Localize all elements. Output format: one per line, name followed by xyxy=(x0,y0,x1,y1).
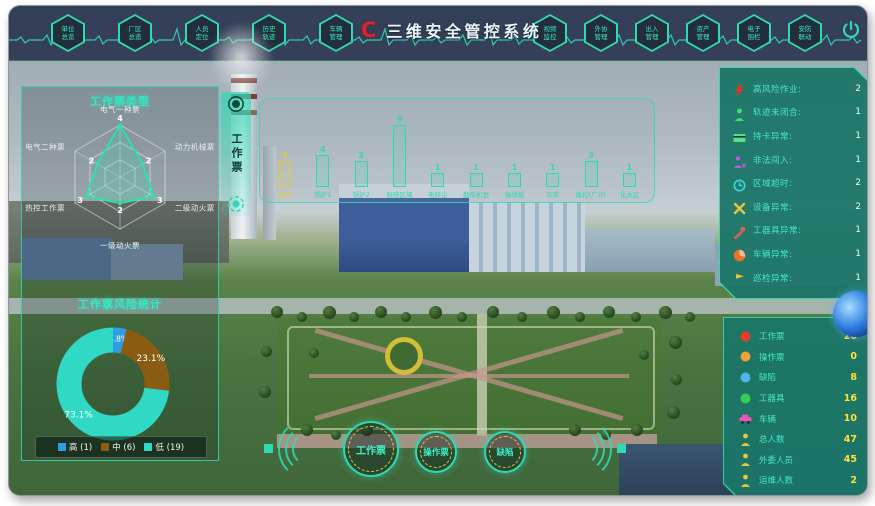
alarm-row-3: 非法闯入:1 xyxy=(733,148,861,172)
alarm-count: 1 xyxy=(845,225,861,235)
area-bar-value: 4 xyxy=(320,145,326,154)
arc-decoration-right xyxy=(550,418,612,480)
stats-label: 外委人员 xyxy=(759,454,844,466)
scene-tree xyxy=(271,306,283,318)
area-bar-value: 3 xyxy=(282,151,288,160)
nav-item-left-4-label: 车辆管理 xyxy=(329,25,344,41)
operation-ticket-button[interactable]: 操作票 xyxy=(415,431,457,473)
alarm-count: 2 xyxy=(845,84,861,94)
person-icon xyxy=(739,474,753,487)
area-bar-value: 3 xyxy=(358,151,364,160)
svg-text:73.1%: 73.1% xyxy=(64,411,93,421)
nav-item-left-1[interactable]: 厂区总览 xyxy=(118,14,152,52)
stats-label: 工器具 xyxy=(759,392,844,404)
scene-tree xyxy=(401,312,411,322)
alarm-label: 持卡异常: xyxy=(753,130,845,142)
scene-tree xyxy=(517,312,527,322)
nav-left-group: 单位总览厂区总览人员定位历史轨迹车辆管理 xyxy=(51,14,353,52)
stats-count: 8 xyxy=(850,372,857,383)
defect-button[interactable]: 缺陷 xyxy=(484,431,526,473)
power-icon xyxy=(840,19,862,41)
nav-item-left-0-face: 单位总览 xyxy=(53,16,83,50)
area-bar-value: 1 xyxy=(550,163,556,172)
scene-tree xyxy=(457,312,467,322)
area-bar-label: 锅炉1 xyxy=(314,189,331,199)
stats-rows: 工作票26操作票0缺陷8工器具16车辆10总人数47外委人员45运维人数2 xyxy=(739,326,857,491)
stats-label: 操作票 xyxy=(759,351,850,363)
alarm-count: 1 xyxy=(845,249,861,259)
area-bar-value: 9 xyxy=(397,115,403,124)
scene-helipad xyxy=(385,337,423,375)
nav-right-group: 视频监控外协管理出入管理资产管理电子围栏安防联动 xyxy=(533,14,822,52)
area-bar-value: 1 xyxy=(435,163,441,172)
scene-tree xyxy=(603,306,615,318)
scene-tree xyxy=(429,306,442,319)
card-icon xyxy=(733,129,748,142)
stats-label: 工作票 xyxy=(759,330,844,342)
person-icon xyxy=(733,106,748,119)
area-bar-1: 4锅炉1 xyxy=(304,145,341,199)
legend-swatch xyxy=(58,443,66,451)
legend-swatch xyxy=(101,443,109,451)
area-bar-4: 1电除尘 xyxy=(419,163,456,199)
high-voltage-icon xyxy=(733,82,748,95)
work-ticket-button-label: 工作票 xyxy=(356,442,386,457)
alarm-panel: 高风险作业:2轨迹未闭合:1持卡异常:1非法闯入:1区域超时:2设备异常:2工器… xyxy=(719,67,868,299)
stats-label: 车辆 xyxy=(759,413,844,425)
area-bar-0: 3栈桥 xyxy=(266,151,303,199)
area-bar-rect xyxy=(585,161,598,187)
alarm-row-1: 轨迹未闭合:1 xyxy=(733,101,861,125)
stats-row-5: 总人数47 xyxy=(739,429,857,450)
area-bar-7: 1灰库 xyxy=(534,163,571,199)
area-bar-label: 锅炉2 xyxy=(353,189,370,199)
alarm-rows: 高风险作业:2轨迹未闭合:1持卡异常:1非法闯入:1区域超时:2设备异常:2工器… xyxy=(733,77,861,289)
area-bar-label: 脱硫区域 xyxy=(386,189,412,199)
area-bar-label: 栈桥 xyxy=(278,189,291,199)
stats-row-7: 运维人数2 xyxy=(739,470,857,491)
brand: C 三维安全管控系统 xyxy=(361,18,542,42)
area-bar-5: 1翻车机室 xyxy=(458,163,495,199)
nav-item-right-1[interactable]: 外协管理 xyxy=(584,14,618,52)
nav-item-right-0-label: 视频监控 xyxy=(543,25,558,41)
nav-item-right-3[interactable]: 资产管理 xyxy=(686,14,720,52)
alarm-label: 工器具异常: xyxy=(753,224,845,236)
stats-row-1: 操作票0 xyxy=(739,347,857,368)
stats-count: 10 xyxy=(844,413,857,424)
alarm-label: 巡检异常: xyxy=(753,272,845,284)
svg-text:2: 2 xyxy=(146,157,152,166)
alarm-count: 1 xyxy=(845,155,861,165)
legend-item-1: 中 (6) xyxy=(101,441,135,453)
svg-text:电气一种票: 电气一种票 xyxy=(100,104,140,114)
area-bar-label: 灰库 xyxy=(546,189,559,199)
nav-item-right-3-face: 资产管理 xyxy=(688,16,718,50)
app-screen: 单位总览厂区总览人员定位历史轨迹车辆管理 C 三维安全管控系统 视频监控外协管理… xyxy=(8,5,868,496)
scene-tree xyxy=(487,306,499,318)
scene-tree xyxy=(323,306,336,319)
alarm-row-4: 区域超时:2 xyxy=(733,171,861,195)
person-icon xyxy=(739,433,753,446)
area-bar-label: 集控(厂)外 xyxy=(576,189,607,199)
stats-panel: 工作票26操作票0缺陷8工器具16车辆10总人数47外委人员45运维人数2 xyxy=(723,317,868,496)
alarm-label: 高风险作业: xyxy=(753,83,845,95)
area-bar-label: 翻车机室 xyxy=(463,189,489,199)
area-bar-rect xyxy=(355,161,368,187)
side-tab-label: 工作票 xyxy=(228,133,244,175)
nav-item-right-1-face: 外协管理 xyxy=(586,16,616,50)
clock-icon xyxy=(733,177,748,190)
scene-tree xyxy=(631,312,641,322)
alarm-label: 车辆异常: xyxy=(753,248,845,260)
svg-text:3: 3 xyxy=(77,196,83,205)
area-bar-rect xyxy=(431,173,444,187)
nav-item-right-4-face: 电子围栏 xyxy=(739,16,769,50)
area-bar-value: 1 xyxy=(473,163,479,172)
ring-dashed-icon xyxy=(227,195,245,213)
dot-icon xyxy=(739,350,753,363)
area-bar-value: 1 xyxy=(512,163,518,172)
scene-tree xyxy=(375,306,387,318)
area-bar-label: 化水区 xyxy=(620,189,640,199)
defect-button-label: 缺陷 xyxy=(496,446,513,458)
scene-tree xyxy=(261,346,272,357)
svg-text:电气二种票: 电气二种票 xyxy=(25,142,65,152)
svg-text:4: 4 xyxy=(117,114,123,123)
area-bar-rect xyxy=(546,173,559,187)
area-bar-6: 1输煤楼 xyxy=(496,163,533,199)
nav-item-right-2-face: 出入管理 xyxy=(637,16,667,50)
nav-item-right-2-label: 出入管理 xyxy=(645,25,660,41)
donut-legend: 高 (1)中 (6)低 (19) xyxy=(35,436,207,458)
scene-path xyxy=(309,374,629,378)
scene-tree xyxy=(671,374,682,385)
scene-tree xyxy=(639,350,649,360)
area-bar-label: 输煤楼 xyxy=(505,189,525,199)
stats-label: 缺陷 xyxy=(759,371,850,383)
nav-item-left-2-label: 人员定位 xyxy=(195,25,210,41)
app-logo: C xyxy=(361,18,376,42)
nav-item-right-2[interactable]: 出入管理 xyxy=(635,14,669,52)
nav-item-left-4[interactable]: 车辆管理 xyxy=(319,14,353,52)
alarm-row-7: 车辆异常:1 xyxy=(733,242,861,266)
legend-swatch xyxy=(144,443,152,451)
car-icon xyxy=(739,412,753,425)
area-bar-rect xyxy=(278,161,291,187)
vehicle-icon xyxy=(733,247,748,260)
nav-item-left-0-label: 单位总览 xyxy=(61,25,76,41)
legend-item-0: 高 (1) xyxy=(58,441,92,453)
scene-object xyxy=(469,202,585,272)
scene-tree xyxy=(669,336,682,349)
alarm-count: 1 xyxy=(845,107,861,117)
area-bars: 3栈桥4锅炉13锅炉29脱硫区域1电除尘1翻车机室1输煤楼1灰库3集控(厂)外1… xyxy=(266,115,648,199)
alarm-row-0: 高风险作业:2 xyxy=(733,77,861,101)
scene-tree xyxy=(259,386,271,398)
nav-item-right-5[interactable]: 安防联动 xyxy=(788,14,822,52)
nav-item-left-1-face: 厂区总览 xyxy=(120,16,150,50)
svg-text:23.1%: 23.1% xyxy=(137,354,166,364)
arc-decoration-left xyxy=(278,418,340,480)
radar-chart: 423232电气一种票动力机械票二级动火票一级动火票热控工作票电气二种票 xyxy=(22,87,218,287)
stats-label: 总人数 xyxy=(759,433,844,445)
tool-icon xyxy=(733,224,748,237)
area-bar-panel: 3栈桥4锅炉13锅炉29脱硫区域1电除尘1翻车机室1输煤楼1灰库3集控(厂)外1… xyxy=(259,98,655,203)
alarm-count: 1 xyxy=(845,131,861,141)
window-frame: 单位总览厂区总览人员定位历史轨迹车辆管理 C 三维安全管控系统 视频监控外协管理… xyxy=(0,0,875,506)
work-ticket-side-tab[interactable]: 工作票 xyxy=(221,92,251,216)
patrol-icon xyxy=(733,271,748,284)
area-bar-value: 3 xyxy=(588,151,594,160)
area-bar-rect xyxy=(393,125,406,187)
alarm-label: 轨迹未闭合: xyxy=(753,106,845,118)
area-bar-8: 3集控(厂)外 xyxy=(573,151,610,199)
area-bar-rect xyxy=(470,173,483,187)
scene-tree xyxy=(659,306,672,319)
svg-text:3: 3 xyxy=(157,196,163,205)
area-bar-label: 电除尘 xyxy=(428,189,448,199)
svg-text:一级动火票: 一级动火票 xyxy=(100,240,140,250)
stats-count: 16 xyxy=(844,393,857,404)
stats-count: 2 xyxy=(850,475,857,486)
ring-icon xyxy=(227,95,245,113)
top-nav-bar: 单位总览厂区总览人员定位历史轨迹车辆管理 C 三维安全管控系统 视频监控外协管理… xyxy=(9,6,867,61)
stats-count: 0 xyxy=(850,351,857,362)
legend-item-2: 低 (19) xyxy=(144,441,184,453)
nav-item-right-4[interactable]: 电子围栏 xyxy=(737,14,771,52)
nav-item-right-4-label: 电子围栏 xyxy=(747,25,762,41)
scene-tree xyxy=(309,348,319,358)
nav-item-right-1-label: 外协管理 xyxy=(594,25,609,41)
area-bar-9: 1化水区 xyxy=(611,163,648,199)
alarm-label: 区域超时: xyxy=(753,177,845,189)
alarm-count: 2 xyxy=(845,178,861,188)
operation-ticket-button-label: 操作票 xyxy=(423,446,449,458)
work-ticket-button[interactable]: 工作票 xyxy=(343,421,399,477)
svg-text:动力机械票: 动力机械票 xyxy=(175,142,215,152)
svg-text:2: 2 xyxy=(89,157,95,166)
nav-item-right-5-label: 安防联动 xyxy=(798,25,813,41)
scene-tree xyxy=(685,312,695,322)
alarm-count: 2 xyxy=(845,202,861,212)
area-bar-rect xyxy=(623,173,636,187)
alarm-row-8: 巡检异常:1 xyxy=(733,266,861,290)
area-bar-2: 3锅炉2 xyxy=(343,151,380,199)
alarm-row-2: 持卡异常:1 xyxy=(733,124,861,148)
stats-label: 运维人数 xyxy=(759,474,850,486)
alarm-label: 非法闯入: xyxy=(753,154,845,166)
power-button[interactable] xyxy=(840,19,862,41)
alarm-row-6: 工器具异常:1 xyxy=(733,219,861,243)
nav-item-right-5-face: 安防联动 xyxy=(790,16,820,50)
alarm-count: 1 xyxy=(845,273,861,283)
alarm-row-5: 设备异常:2 xyxy=(733,195,861,219)
svg-text:2: 2 xyxy=(117,206,123,215)
scene-tree xyxy=(547,306,560,319)
scene-tree xyxy=(349,312,359,322)
scene-tree xyxy=(667,406,680,419)
scene-tree xyxy=(575,312,585,322)
dot-icon xyxy=(739,392,753,405)
nav-item-right-3-label: 资产管理 xyxy=(696,25,711,41)
alarm-label: 设备异常: xyxy=(753,201,845,213)
svg-text:二级动火票: 二级动火票 xyxy=(175,203,215,213)
app-title: 三维安全管控系统 xyxy=(386,18,542,42)
left-charts-panel: 工作票类型 423232电气一种票动力机械票二级动火票一级动火票热控工作票电气二… xyxy=(21,86,219,461)
svg-text:热控工作票: 热控工作票 xyxy=(25,203,65,213)
intruder-icon xyxy=(733,153,748,166)
stats-row-4: 车辆10 xyxy=(739,408,857,429)
stats-row-6: 外委人员45 xyxy=(739,450,857,471)
area-bar-value: 1 xyxy=(627,163,633,172)
dot-icon xyxy=(739,330,753,343)
chimney-smoke xyxy=(209,22,273,94)
stats-count: 45 xyxy=(844,454,857,465)
nav-item-left-4-face: 车辆管理 xyxy=(321,16,351,50)
nav-item-left-0[interactable]: 单位总览 xyxy=(51,14,85,52)
scene-tree xyxy=(297,312,307,322)
area-bar-rect xyxy=(508,173,521,187)
scene-tree xyxy=(631,424,643,436)
area-bar-rect xyxy=(316,155,329,187)
stats-row-2: 缺陷8 xyxy=(739,367,857,388)
area-bar-3: 9脱硫区域 xyxy=(381,115,418,199)
person-icon xyxy=(739,453,753,466)
nav-item-left-1-label: 厂区总览 xyxy=(128,25,143,41)
stats-row-3: 工器具16 xyxy=(739,388,857,409)
wrench-icon xyxy=(733,200,748,213)
dot-icon xyxy=(739,371,753,384)
scene-object xyxy=(585,228,715,272)
stats-count: 47 xyxy=(844,434,857,445)
